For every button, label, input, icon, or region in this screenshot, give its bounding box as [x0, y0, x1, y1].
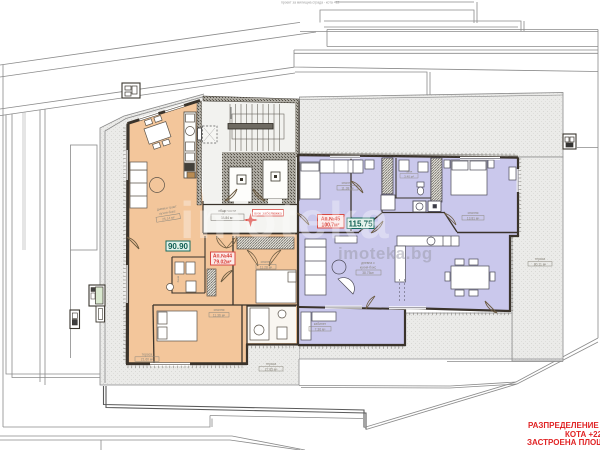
- svg-text:3.40 м²: 3.40 м²: [404, 174, 414, 178]
- svg-text:спалня: спалня: [214, 308, 225, 312]
- svg-text:кухня-бокс: кухня-бокс: [360, 266, 377, 270]
- svg-text:тераса: тераса: [142, 353, 153, 357]
- svg-text:РАЗПРЕДЕЛЕНИЕ ДЕВЕТИ: РАЗПРЕДЕЛЕНИЕ ДЕВЕТИ: [528, 421, 600, 430]
- svg-text:тераса: тераса: [535, 257, 546, 261]
- svg-text:спалня: спалня: [261, 260, 272, 264]
- svg-text:кабинет: кабинет: [314, 322, 327, 326]
- svg-text:imoteka: imoteka: [180, 192, 391, 250]
- svg-text:проект за жилищна сграда - кот: проект за жилищна сграда - кота +22: [281, 1, 340, 5]
- svg-text:тераса: тераса: [266, 362, 277, 366]
- svg-text:11.38 м²: 11.38 м²: [341, 186, 354, 190]
- svg-text:21.60 м²: 21.60 м²: [141, 358, 154, 362]
- svg-text:баня: баня: [176, 275, 180, 282]
- svg-text:11.28 м²: 11.28 м²: [260, 265, 273, 269]
- svg-text:спалня: спалня: [342, 181, 353, 185]
- svg-text:7.36 м²: 7.36 м²: [315, 327, 327, 331]
- svg-text:баня: баня: [406, 170, 413, 174]
- svg-text:38.75м²: 38.75м²: [362, 271, 375, 275]
- svg-text:11.36 м²: 11.36 м²: [213, 313, 226, 317]
- svg-text:imoteka.bg: imoteka.bg: [338, 244, 433, 263]
- svg-text:спалня: спалня: [468, 211, 479, 215]
- svg-text:27.85 м²: 27.85 м²: [265, 367, 278, 371]
- svg-text:13.81 м²: 13.81 м²: [467, 216, 480, 220]
- svg-text:80.11 м²: 80.11 м²: [534, 262, 547, 266]
- svg-text:ЗАСТРОЕНА ПЛОЩ -: ЗАСТРОЕНА ПЛОЩ -: [527, 438, 600, 447]
- svg-text:79.02м²: 79.02м²: [214, 260, 232, 266]
